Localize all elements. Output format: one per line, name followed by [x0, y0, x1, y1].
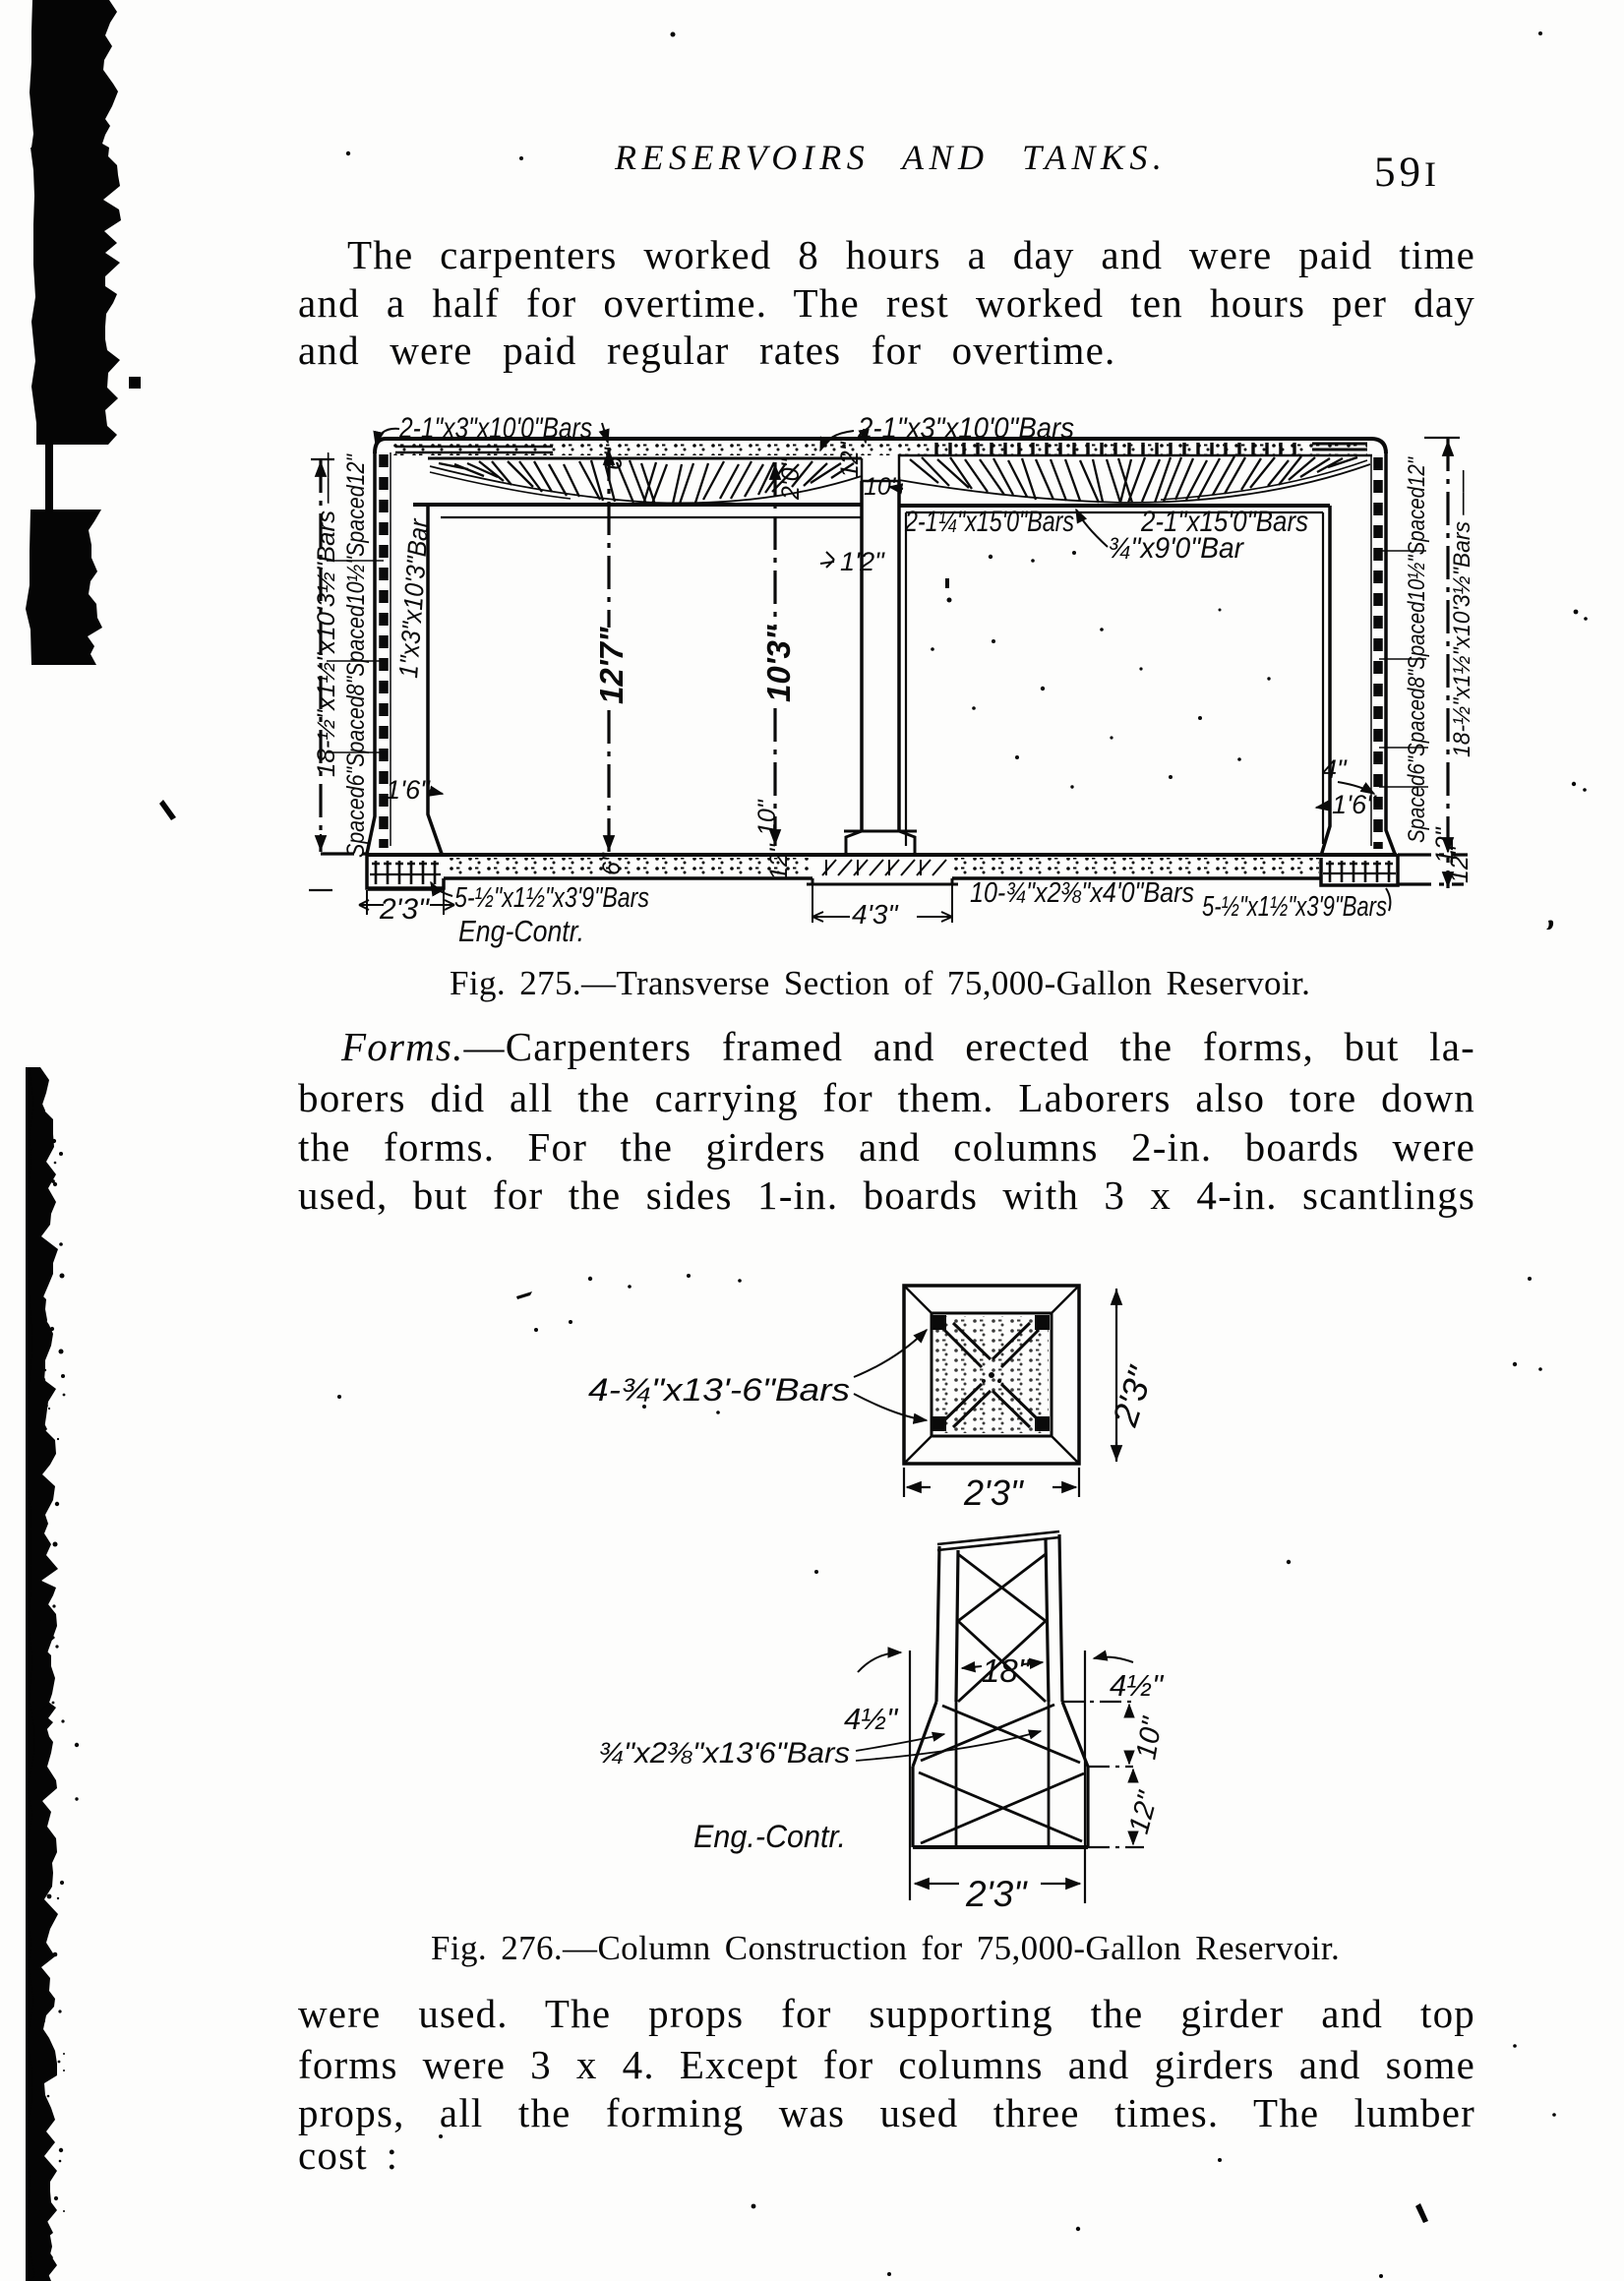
svg-text:2'3": 2'3"	[379, 893, 430, 926]
svg-text:12": 12"	[1446, 846, 1474, 883]
svg-text:1'6": 1'6"	[386, 775, 431, 805]
svg-text:Spaced6"Spaced8"Spaced10½"Spac: Spaced6"Spaced8"Spaced10½"Spaced12"	[1404, 456, 1430, 843]
svg-text:4-¾"x13'-6"Bars: 4-¾"x13'-6"Bars	[588, 1372, 850, 1408]
svg-text:4": 4"	[1322, 754, 1348, 784]
svg-text:4½": 4½"	[1110, 1668, 1165, 1703]
svg-text:2'3": 2'3"	[1104, 1360, 1161, 1432]
svg-text:2'0": 2'0"	[777, 457, 805, 501]
svg-text:5-½"x1½"x3'9"Bars: 5-½"x1½"x3'9"Bars	[454, 882, 649, 914]
svg-text:10-¾"x2⅜"x4'0"Bars: 10-¾"x2⅜"x4'0"Bars	[970, 877, 1194, 909]
svg-text:12": 12"	[1123, 1787, 1165, 1837]
svg-text:2-1"x3"x10'0"Bars: 2-1"x3"x10'0"Bars	[398, 412, 592, 445]
svg-text:5-½"x1½"x3'9"Bars: 5-½"x1½"x3'9"Bars	[1202, 891, 1387, 923]
svg-text:18": 18"	[982, 1652, 1031, 1689]
svg-text:10": 10"	[864, 473, 901, 501]
svg-text:2-1"x3"x10'0"Bars: 2-1"x3"x10'0"Bars	[857, 412, 1074, 445]
svg-text:2'3": 2'3"	[963, 1472, 1025, 1513]
svg-text:18-½"x1½"x10'3½"Bars ——: 18-½"x1½"x10'3½"Bars ——	[313, 451, 340, 777]
svg-text:2'3": 2'3"	[965, 1874, 1028, 1914]
svg-text:¾"x2⅜"x13'6"Bars: ¾"x2⅜"x13'6"Bars	[598, 1737, 850, 1770]
svg-text:1'2": 1'2"	[840, 547, 885, 576]
svg-text:10": 10"	[1130, 1713, 1169, 1762]
svg-text:4½": 4½"	[844, 1702, 899, 1736]
svg-text:Eng.-Contr.: Eng.-Contr.	[693, 1819, 846, 1854]
svg-text:12": 12"	[765, 843, 793, 880]
svg-text:¾"x9'0"Bar: ¾"x9'0"Bar	[1108, 532, 1244, 565]
svg-text:18-½"x1½"x10'3½"Bars ——: 18-½"x1½"x10'3½"Bars ——	[1449, 469, 1475, 757]
svg-text:6": 6"	[600, 447, 628, 470]
svg-text:10": 10"	[753, 799, 781, 836]
svg-text:6": 6"	[598, 852, 626, 875]
svg-text:12": 12"	[836, 441, 864, 478]
svg-text:12'7": 12'7"	[593, 627, 630, 704]
svg-text:1'6": 1'6"	[1332, 790, 1377, 819]
svg-text:Spaced6"Spaced8"Spaced10½"Spac: Spaced6"Spaced8"Spaced10½"Spaced12"	[342, 453, 370, 858]
svg-text:4'3": 4'3"	[852, 899, 898, 930]
svg-text:Eng-Contr.: Eng-Contr.	[458, 914, 584, 948]
svg-text:10'3": 10'3"	[760, 625, 797, 702]
svg-text:2-1¼"x15'0"Bars: 2-1¼"x15'0"Bars	[904, 506, 1074, 538]
